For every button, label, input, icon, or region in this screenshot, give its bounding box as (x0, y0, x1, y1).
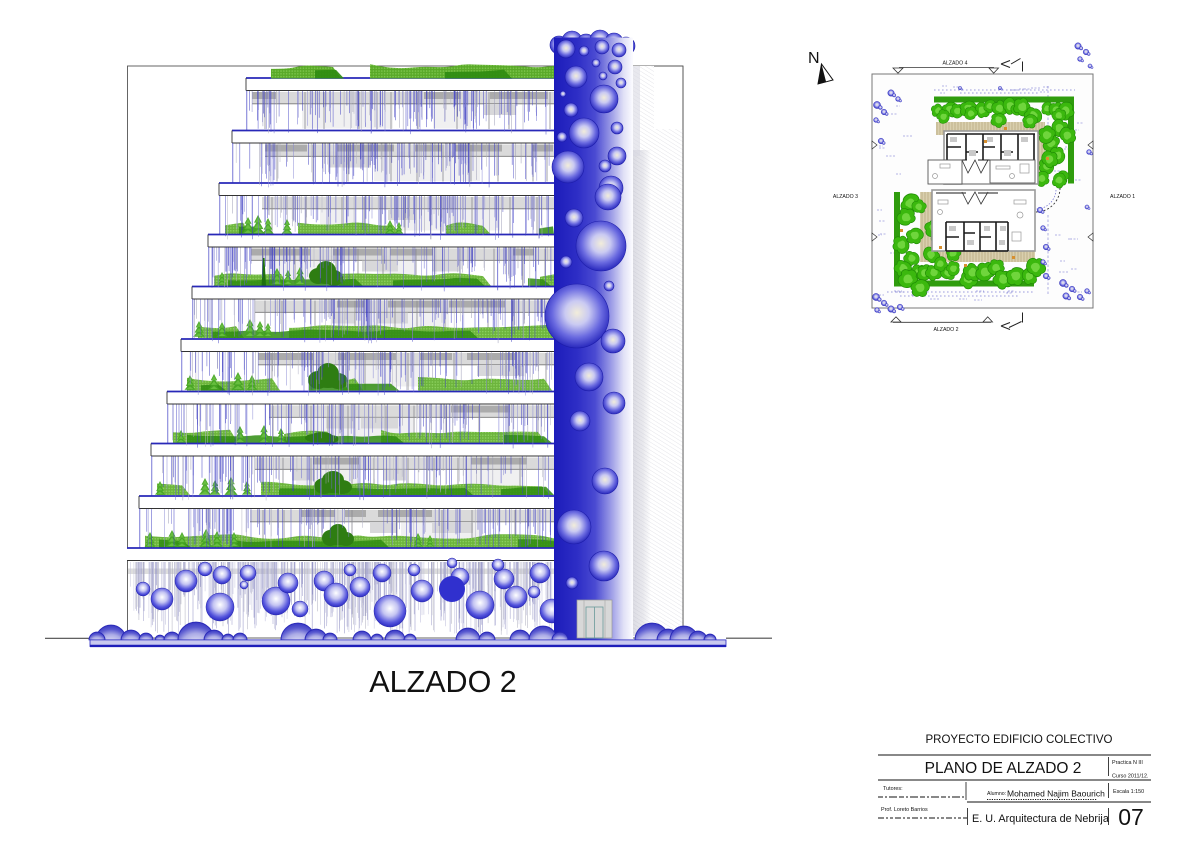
svg-text:PLANO DE ALZADO 2: PLANO DE ALZADO 2 (925, 760, 1082, 777)
svg-text:Mohamed Najim Baourich: Mohamed Najim Baourich (1007, 789, 1105, 799)
svg-text:PROYECTO EDIFICIO COLECTIVO: PROYECTO EDIFICIO COLECTIVO (925, 734, 1112, 746)
svg-text:ALZADO 4: ALZADO 4 (942, 61, 967, 67)
svg-text:ALZADO 1: ALZADO 1 (1110, 194, 1135, 200)
svg-text:Escala 1:150: Escala 1:150 (1113, 789, 1144, 795)
svg-text:Curso 2011/12.: Curso 2011/12. (1112, 774, 1148, 780)
svg-text:ALZADO 2: ALZADO 2 (933, 327, 958, 333)
svg-text:Prof. Loreto Barrios: Prof. Loreto Barrios (881, 807, 928, 813)
svg-text:N: N (808, 50, 820, 67)
svg-text:Tutores:: Tutores: (883, 786, 903, 792)
svg-text:ALZADO 2: ALZADO 2 (369, 665, 516, 699)
svg-text:ALZADO 3: ALZADO 3 (833, 194, 858, 200)
svg-text:Alumno:: Alumno: (987, 791, 1006, 797)
svg-text:Practica N III: Practica N III (1112, 760, 1143, 766)
svg-text:E. U. Arquitectura de Nebrija: E. U. Arquitectura de Nebrija (972, 813, 1109, 825)
svg-text:07: 07 (1118, 804, 1144, 830)
